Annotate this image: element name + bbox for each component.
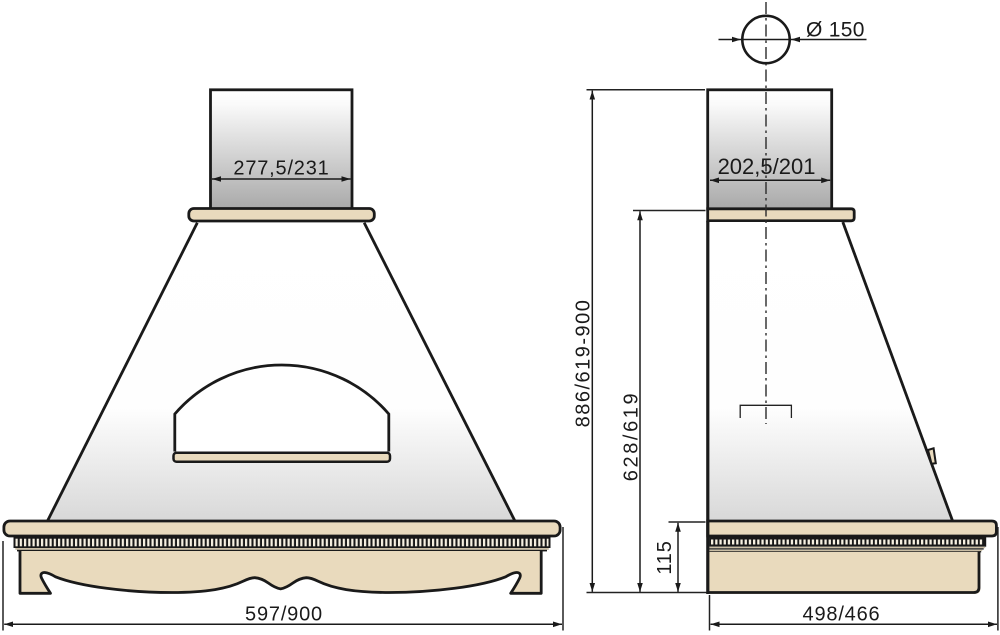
svg-text:498/466: 498/466 [803,604,881,626]
svg-text:628/619: 628/619 [620,391,642,482]
svg-text:277,5/231: 277,5/231 [233,158,329,180]
svg-text:115: 115 [654,540,676,574]
svg-text:886/619-900: 886/619-900 [573,299,595,428]
svg-text:Ø 150: Ø 150 [806,19,865,42]
svg-text:597/900: 597/900 [245,604,323,626]
